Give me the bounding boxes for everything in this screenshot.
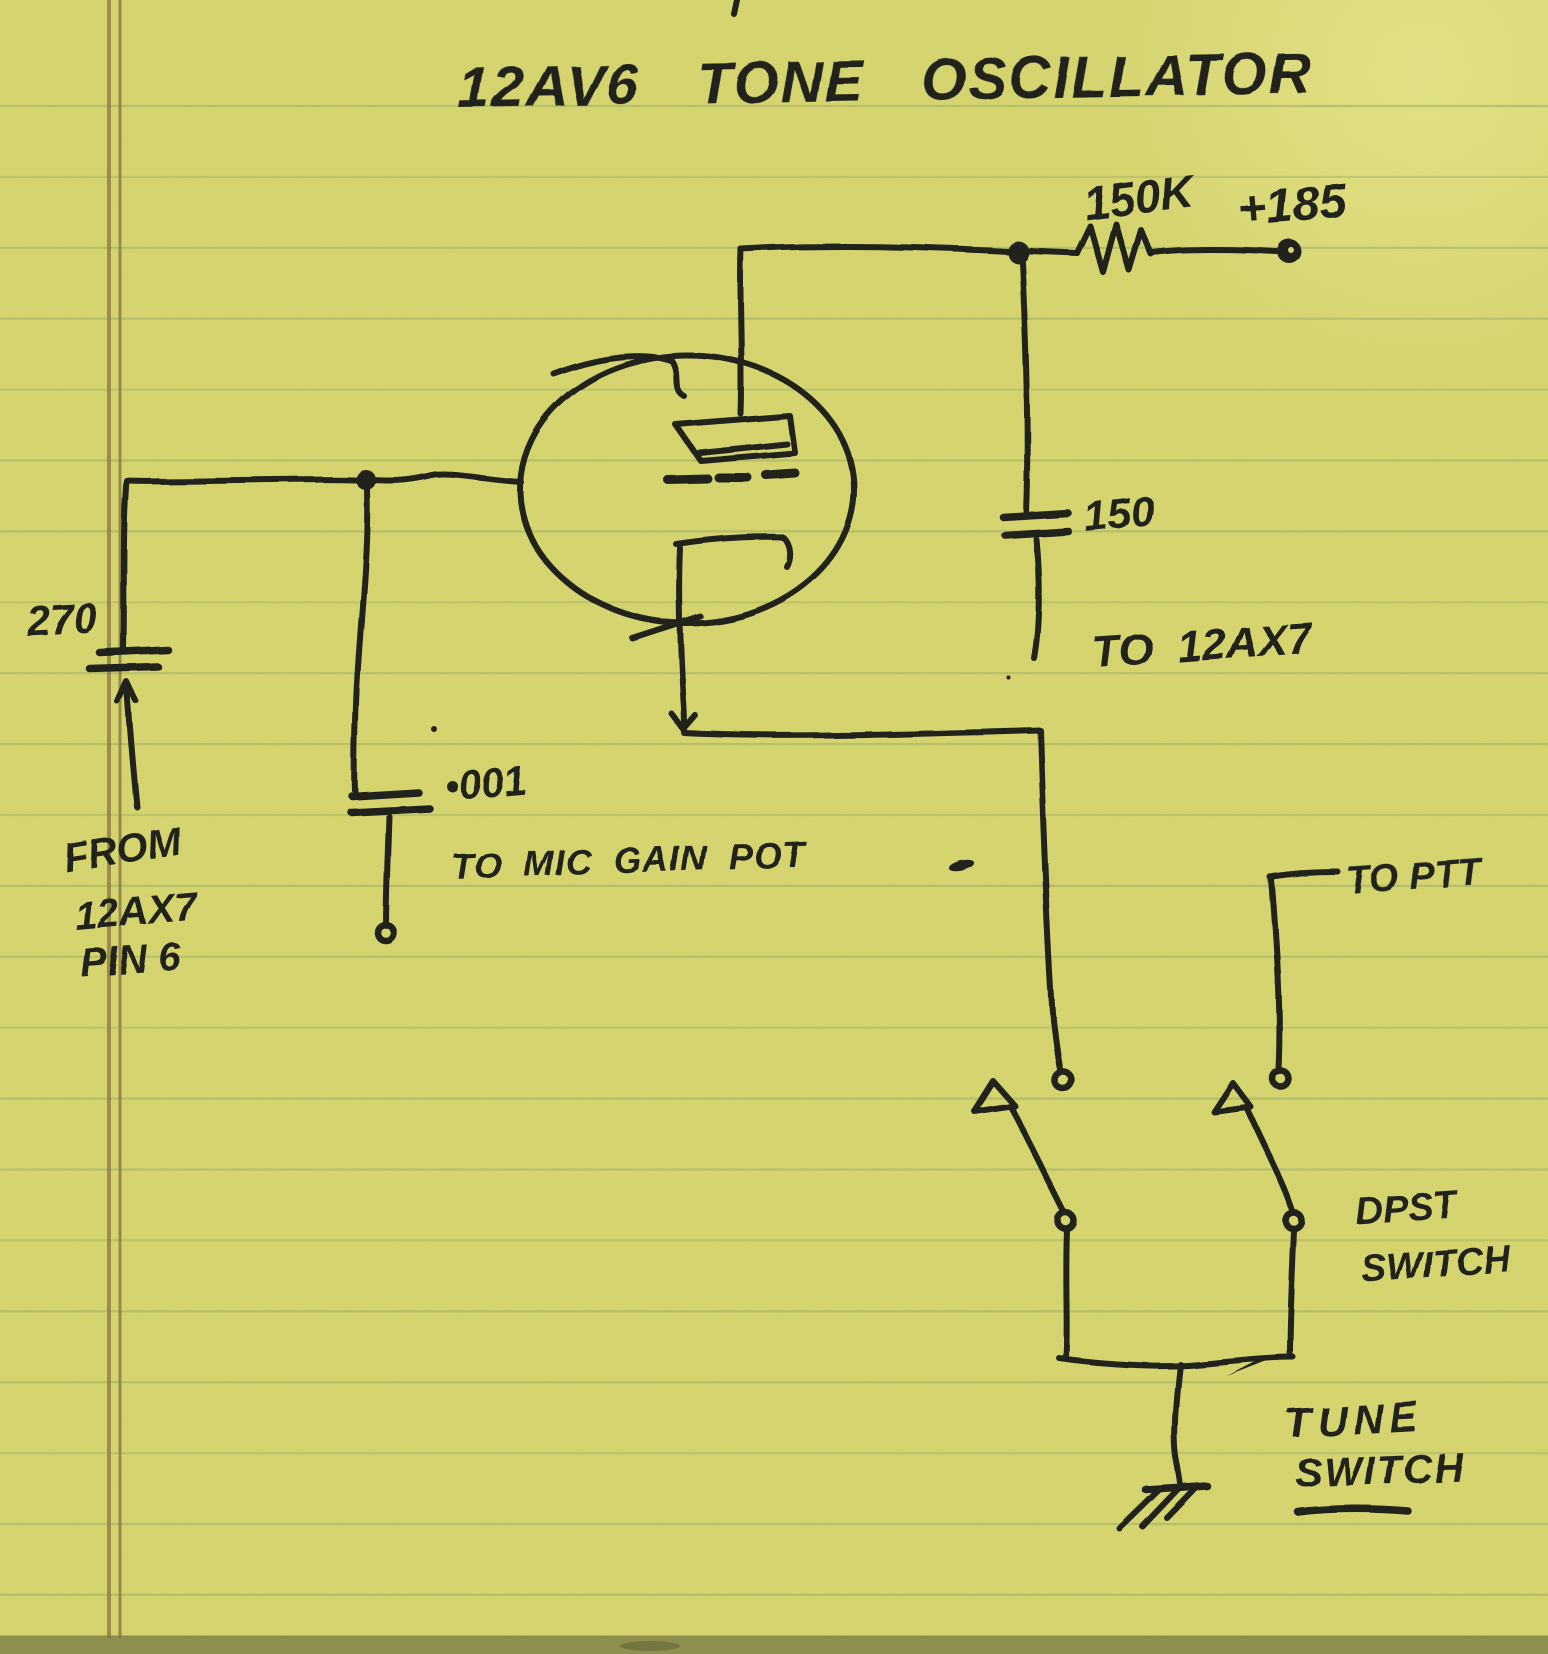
scan-artifact-tick xyxy=(734,0,737,14)
terminal-hole xyxy=(1288,247,1294,253)
label-tune-line1: TUNE xyxy=(1284,1393,1425,1447)
label-coupling-cap-value: •001 xyxy=(443,758,527,809)
junction-dot xyxy=(1007,241,1029,263)
label-grid-cap-value: 270 xyxy=(25,594,98,645)
label-from-line3: PIN 6 xyxy=(80,935,184,986)
scanned-schematic-page: 12AV6 TONE OSCILLATOR 150K +185 150 TO 1… xyxy=(0,0,1548,1654)
label-dpst-line1: DPST xyxy=(1354,1184,1461,1233)
label-supply-voltage: +185 xyxy=(1236,175,1350,237)
label-underline xyxy=(1298,1509,1408,1512)
label-feedback-cap-value: 150 xyxy=(1082,487,1157,541)
schematic-canvas: 12AV6 TONE OSCILLATOR 150K +185 150 TO 1… xyxy=(0,0,1548,1654)
plate-lead-wire xyxy=(740,249,741,414)
label-tune-line2: SWITCH xyxy=(1295,1446,1466,1496)
page-bottom-edge xyxy=(0,1637,1548,1654)
